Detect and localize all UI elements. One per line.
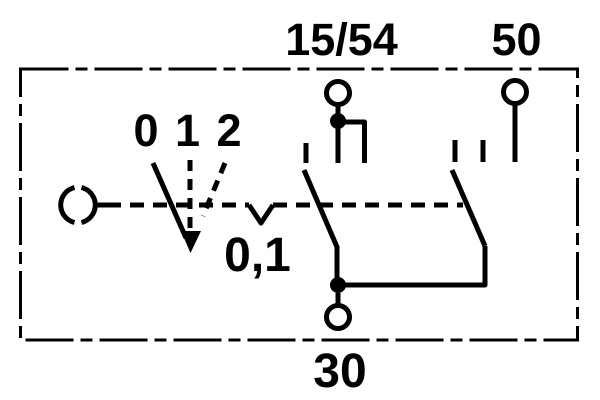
ignition-switch-wiring-diagram: 15/54 50 30 0 1 2 0,1 [0,0,600,400]
position-arrow-head [181,231,201,253]
terminal-label-50: 50 [491,14,541,65]
bridge-contact-15-54 [338,122,365,163]
actuator-circle-left-arc [61,188,75,223]
actuator-circle-right-arc [82,188,96,223]
terminal-label-15-54: 15/54 [285,14,398,65]
position-2-dashed-stroke [203,163,225,216]
intermediate-position-label: 0,1 [224,229,291,282]
terminal-ring-15-54 [327,82,350,105]
wiper-arm-right [452,170,485,246]
schematic-canvas: 15/54 50 30 0 1 2 0,1 [0,0,600,400]
position-0-stroke [153,163,186,238]
switch-positions-label: 0 1 2 [133,105,243,156]
terminal-ring-50 [504,81,527,104]
common-bus-link [338,246,485,285]
terminal-label-30: 30 [313,345,366,398]
junction-dot-bottom [330,277,346,293]
terminal-ring-30 [327,306,350,329]
spring-return-notch [249,205,273,223]
wiper-arm-left [304,170,337,283]
